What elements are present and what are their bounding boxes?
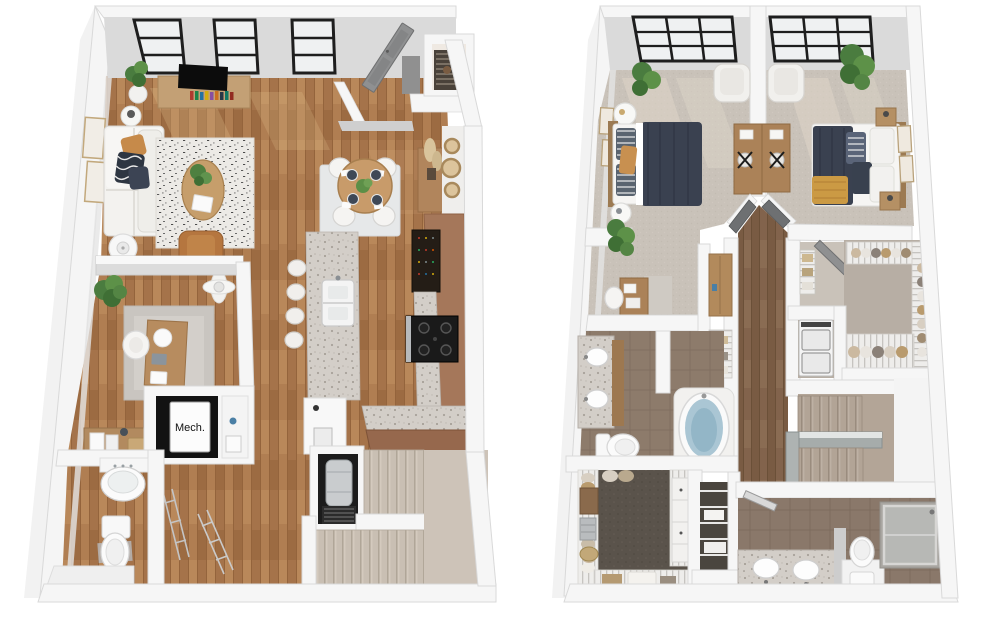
svg-text:Mech.: Mech.	[175, 422, 205, 434]
